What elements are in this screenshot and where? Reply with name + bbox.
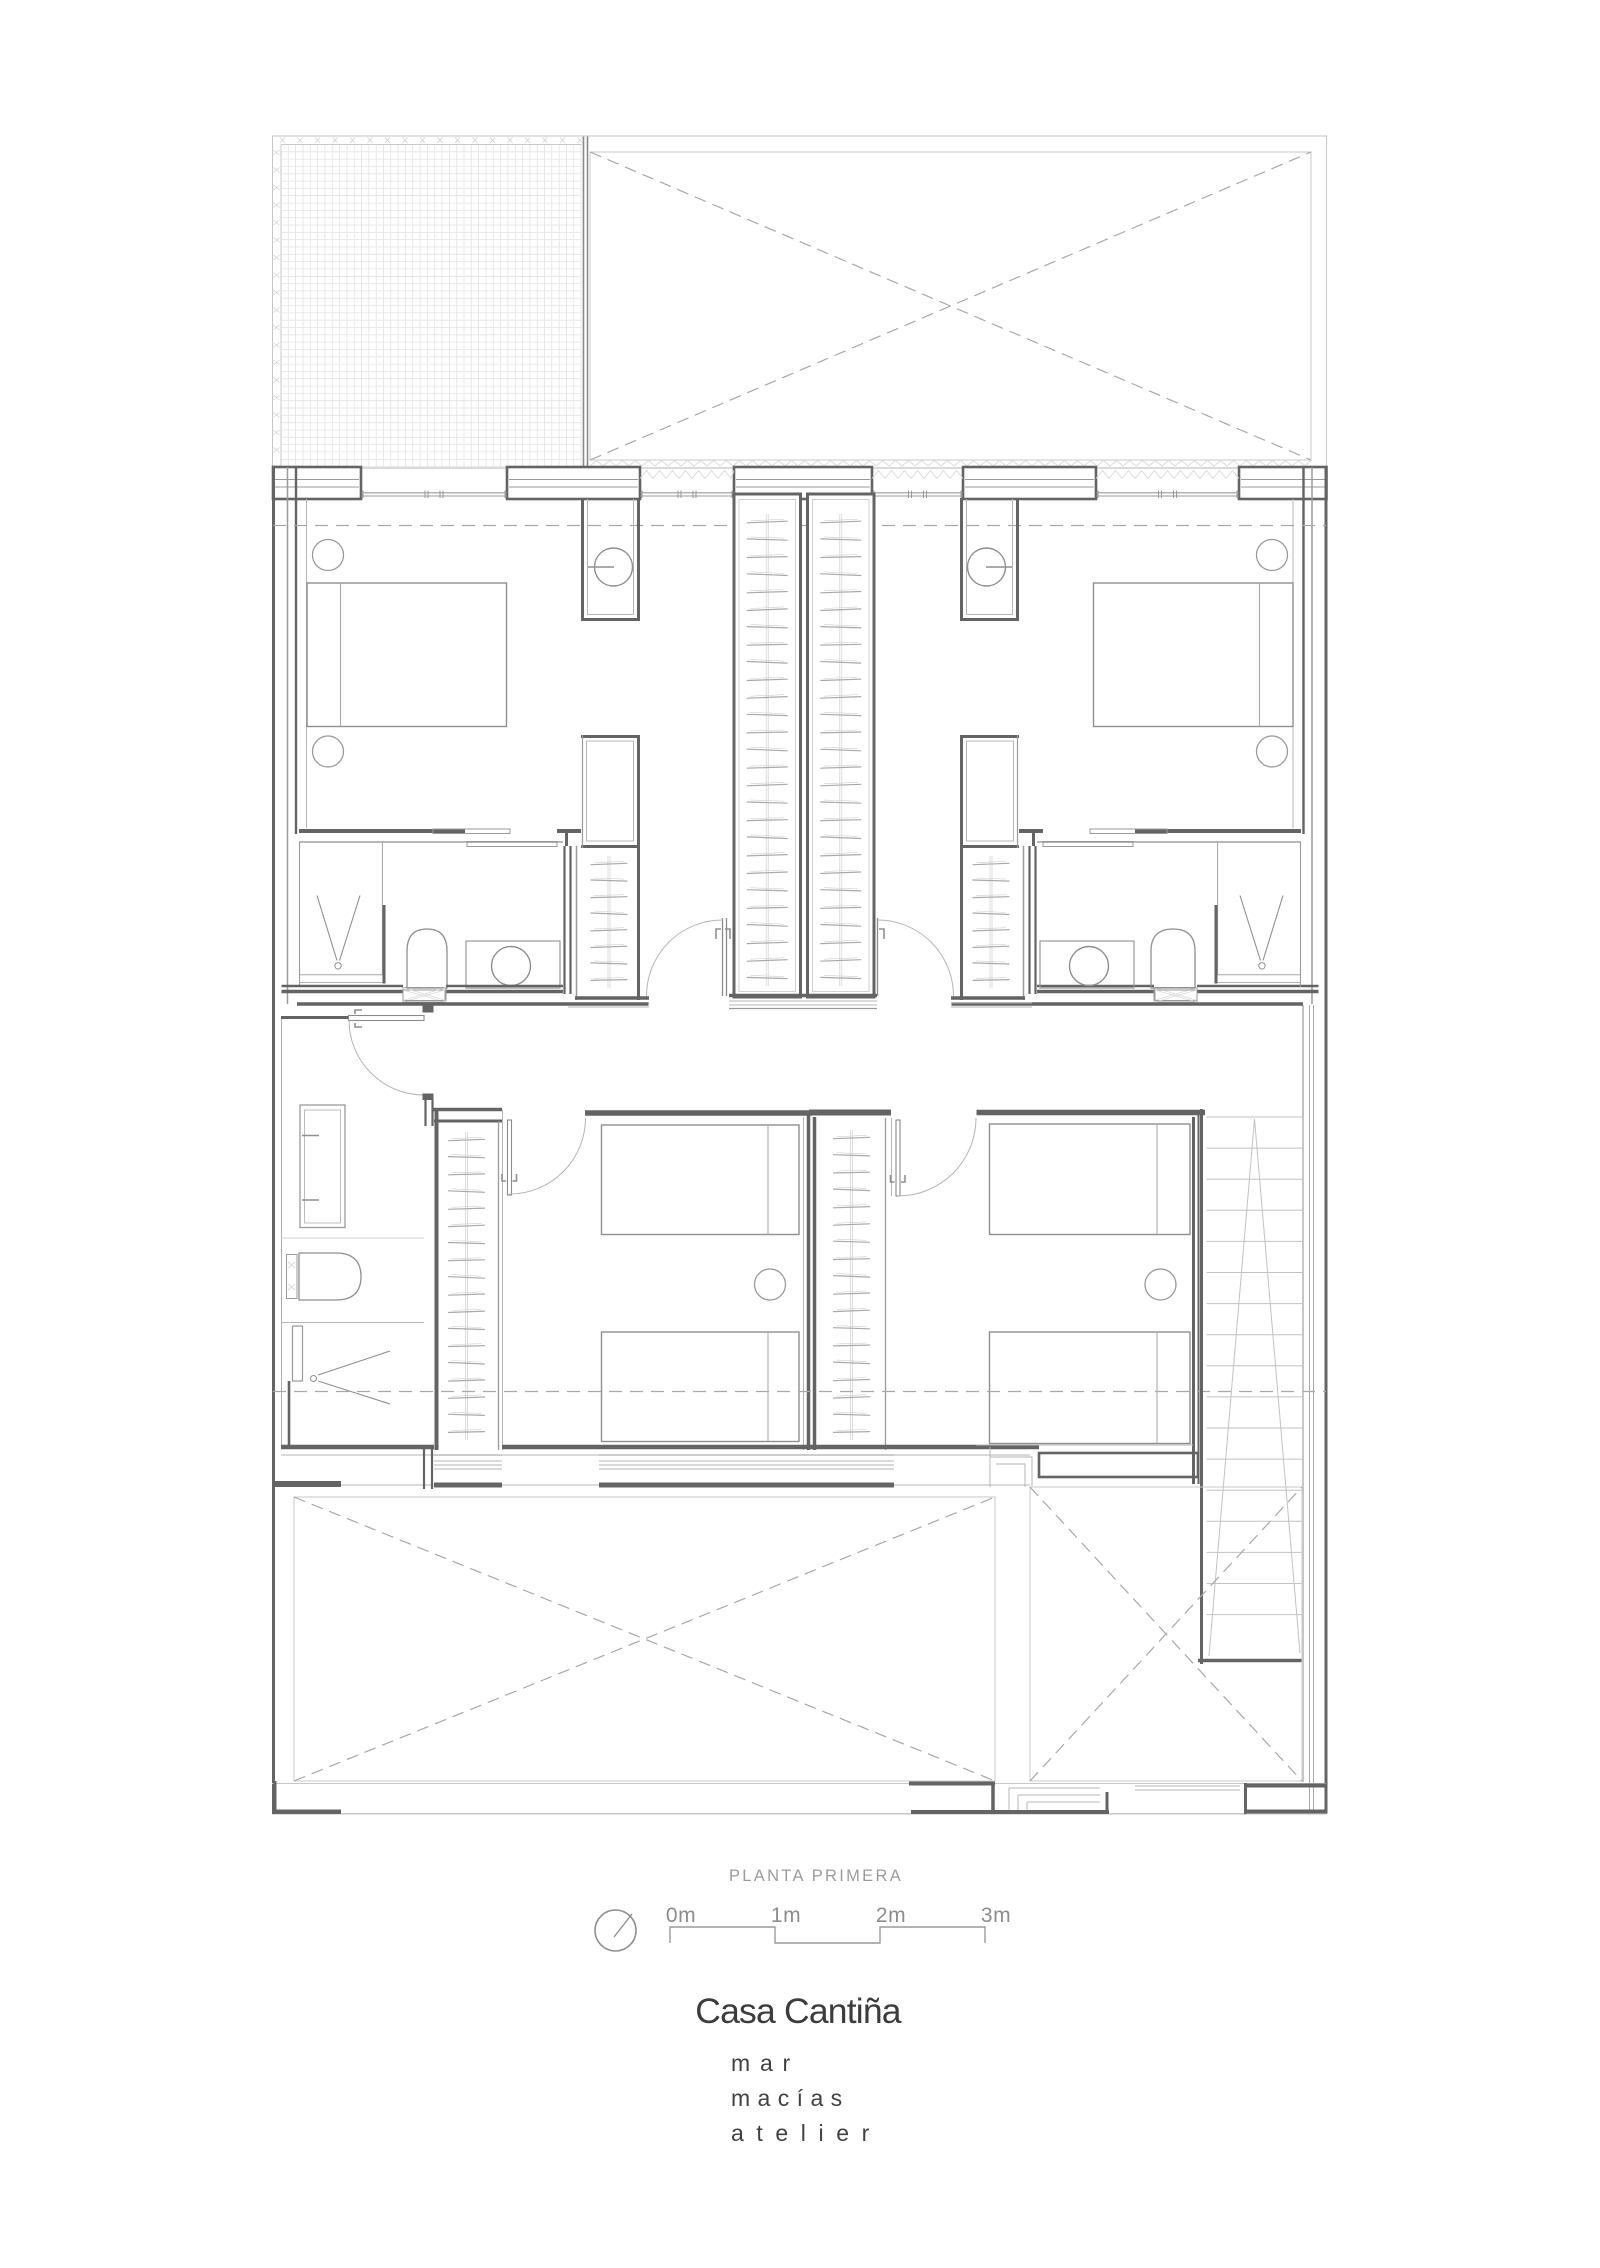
svg-text:macías: macías (731, 2085, 850, 2111)
svg-text:1m: 1m (771, 1904, 801, 1927)
svg-text:atelier: atelier (731, 2120, 882, 2146)
svg-text:2m: 2m (876, 1904, 906, 1927)
svg-text:Casa Cantiña: Casa Cantiña (695, 1991, 902, 2031)
svg-text:mar: mar (731, 2050, 800, 2076)
svg-text:0m: 0m (666, 1904, 696, 1927)
svg-text:PLANTA PRIMERA: PLANTA PRIMERA (729, 1867, 903, 1885)
svg-text:3m: 3m (981, 1904, 1011, 1927)
